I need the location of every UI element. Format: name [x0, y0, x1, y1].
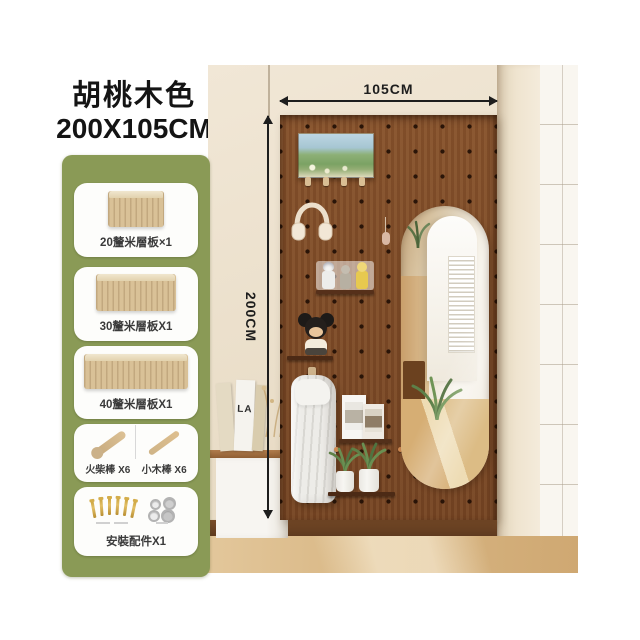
figurine-icon: [356, 271, 368, 289]
height-dimension: 200CM: [245, 116, 271, 518]
tiny-caption-mark: [156, 522, 168, 524]
wood-peg-icon: [341, 177, 347, 186]
wood-sticks-icon: [84, 427, 188, 459]
product-size: 200X105CM: [52, 113, 216, 145]
hanging-charm-icon: [382, 217, 390, 247]
divider: [135, 425, 136, 459]
part-card-shelf-30: 30釐米層板X1: [74, 267, 198, 341]
product-detail-image: 胡桃木色 200X105CM LA: [0, 0, 640, 640]
headphones-icon: [288, 199, 336, 243]
part-icon-area: [74, 424, 198, 461]
part-label: 安裝配件X1: [106, 533, 166, 556]
shelf-board-30cm-icon: [96, 274, 176, 311]
wood-peg-icon: [323, 177, 329, 186]
part-icon-area: [74, 346, 198, 396]
washer-icon: [148, 510, 160, 522]
mounting-hardware-icon: [84, 493, 188, 527]
part-label: 30釐米層板X1: [100, 318, 173, 341]
part-card-shelf-40: 40釐米層板X1: [74, 346, 198, 419]
wall-column: [497, 65, 540, 573]
part-icon-area: [74, 267, 198, 318]
width-dimension-label: 105CM: [280, 81, 497, 97]
wood-floor: [208, 536, 578, 573]
plant-pot: [359, 469, 379, 492]
figurine-icon: [322, 271, 335, 289]
part-icon-area: [74, 487, 198, 533]
wood-dowel-icon: [148, 429, 181, 455]
plant-pot: [336, 471, 354, 492]
product-color-name: 胡桃木色: [52, 80, 216, 113]
height-dimension-arrow: [267, 116, 269, 518]
plant-icon: [351, 441, 387, 471]
wood-peg-icon: [305, 177, 311, 186]
mini-shelf: [328, 492, 395, 496]
parts-panel: 20釐米層板×1 30釐米層板X1 40釐米層板X1 火柴: [62, 155, 210, 577]
stick-labels: 火柴棒 X6 小木棒 X6: [74, 461, 198, 482]
match-stick-icon: [95, 429, 127, 455]
wood-peg-icon: [359, 177, 365, 186]
tiny-caption-mark: [114, 522, 128, 524]
oval-mirror: [401, 206, 489, 489]
shelf-board-20cm-icon: [108, 191, 164, 227]
tiled-wall: [540, 65, 578, 573]
screw-icon: [108, 498, 111, 515]
product-title: 胡桃木色 200X105CM: [52, 80, 216, 146]
mirror-gloss: [401, 206, 489, 489]
part-label: 小木棒 X6: [142, 461, 187, 476]
mini-shelf: [287, 356, 333, 360]
screw-icon: [115, 498, 119, 515]
tiny-caption-mark: [96, 522, 110, 524]
height-dimension-label: 200CM: [243, 292, 259, 342]
shelf-board-40cm-icon: [84, 354, 188, 389]
hanging-towel: [291, 375, 336, 503]
width-dimension: 105CM: [280, 81, 497, 102]
part-icon-area: [74, 183, 198, 234]
part-card-sticks: 火柴棒 X6 小木棒 X6: [74, 424, 198, 482]
washer-icon: [150, 499, 161, 510]
scene-photo: LA: [208, 65, 578, 573]
figurine-icon: [340, 273, 351, 289]
screw-icon: [91, 501, 97, 518]
part-card-hardware: 安裝配件X1: [74, 487, 198, 556]
screw-icon: [99, 499, 103, 516]
washer-icon: [163, 497, 176, 510]
width-dimension-arrow: [280, 100, 497, 102]
pegboard: [280, 115, 497, 520]
part-card-shelf-20: 20釐米層板×1: [74, 183, 198, 257]
wall-corner-line: [268, 65, 270, 117]
screw-icon: [130, 501, 136, 518]
washer-icon: [161, 509, 175, 523]
photo-frame: [363, 404, 384, 439]
landscape-painting: [298, 133, 374, 178]
part-label: 40釐米層板X1: [100, 396, 173, 419]
mickey-plush-icon: [294, 312, 338, 357]
mini-shelf: [316, 290, 374, 294]
book: [216, 383, 236, 452]
part-label: 火柴棒 X6: [85, 461, 130, 476]
screw-icon: [123, 499, 128, 516]
part-label: 20釐米層板×1: [100, 234, 172, 257]
